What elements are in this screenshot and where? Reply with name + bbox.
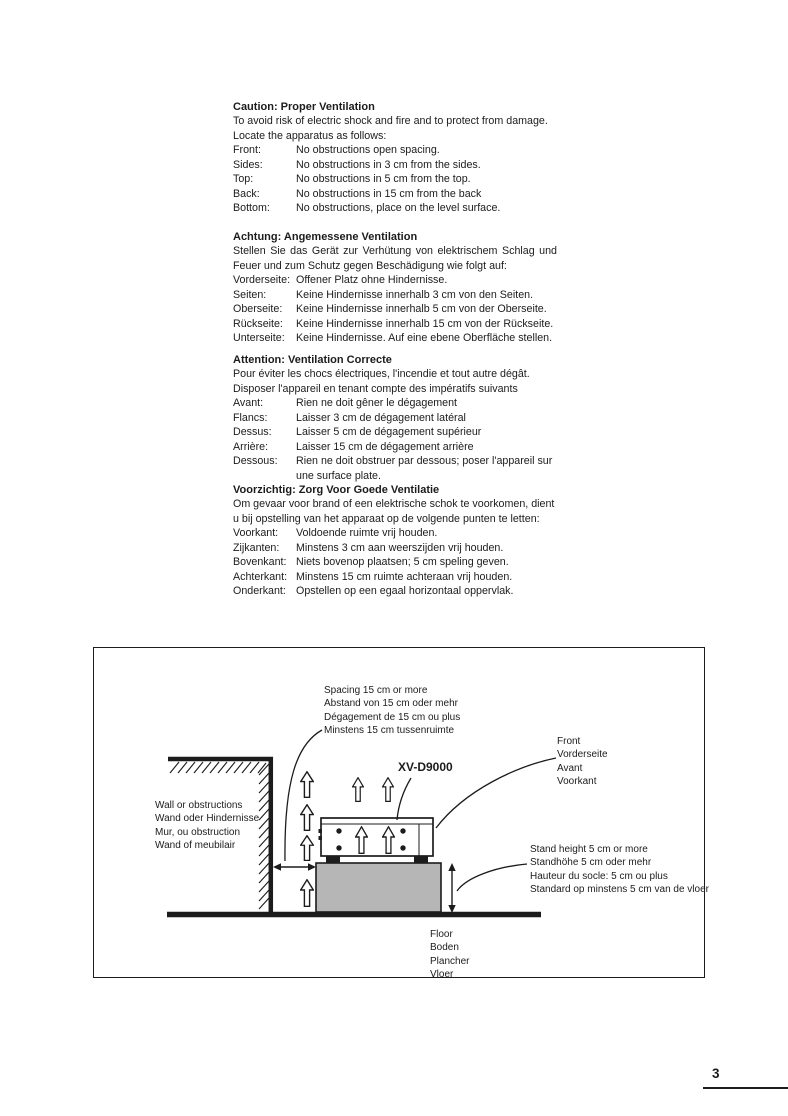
front-label: Front Vorderseite Avant Voorkant xyxy=(557,735,608,789)
spec-label: Back: xyxy=(233,187,296,201)
model-leader-line xyxy=(397,778,411,820)
section-caution-english: Caution: Proper Ventilation To avoid ris… xyxy=(233,100,557,216)
spec-value: Keine Hindernisse innerhalb 3 cm von den… xyxy=(296,288,557,302)
intro-line: u bij opstelling van het apparaat op de … xyxy=(233,512,557,526)
page-number-rule xyxy=(703,1087,788,1089)
spacing-double-arrow-icon xyxy=(273,863,316,871)
intro-line: Disposer l'appareil en tenant compte des… xyxy=(233,382,557,396)
spec-label: Bottom: xyxy=(233,201,296,215)
wall-hatching xyxy=(170,762,266,773)
spec-row: Top:No obstructions in 5 cm from the top… xyxy=(233,172,557,186)
floor-label: Floor Boden Plancher Vloer xyxy=(430,928,469,982)
spec-row: Rückseite:Keine Hindernisse innerhalb 15… xyxy=(233,317,557,331)
unit-foot xyxy=(414,856,428,863)
page-number: 3 xyxy=(712,1066,720,1081)
spec-label-empty xyxy=(233,469,296,483)
spec-label: Top: xyxy=(233,172,296,186)
wall-label: Wall or obstructions Wand oder Hindernis… xyxy=(155,799,259,853)
spec-row: Back:No obstructions in 15 cm from the b… xyxy=(233,187,557,201)
section-heading: Achtung: Angemessene Ventilation xyxy=(233,230,557,244)
spec-value: une surface plate. xyxy=(296,469,557,483)
spec-row: Achterkant:Minstens 15 cm ruimte achtera… xyxy=(233,570,557,584)
spec-label: Flancs: xyxy=(233,411,296,425)
spec-row: Arrière:Laisser 15 cm de dégagement arri… xyxy=(233,440,557,454)
stand-shape xyxy=(316,863,441,912)
section-heading: Voorzichtig: Zorg Voor Goede Ventilatie xyxy=(233,483,557,497)
spec-row: Oberseite:Keine Hindernisse innerhalb 5 … xyxy=(233,302,557,316)
spec-row: Flancs:Laisser 3 cm de dégagement latéra… xyxy=(233,411,557,425)
spec-label: Oberseite: xyxy=(233,302,296,316)
spec-row: Unterseite:Keine Hindernisse. Auf eine e… xyxy=(233,331,557,345)
ventilation-diagram: Spacing 15 cm or more Abstand von 15 cm … xyxy=(93,647,705,978)
intro-line: Feuer und zum Schutz gegen Beschädigung … xyxy=(233,259,557,273)
intro-line: To avoid risk of electric shock and fire… xyxy=(233,114,557,128)
front-leader-line xyxy=(436,758,556,828)
spec-row: Avant:Rien ne doit gêner le dégagement xyxy=(233,396,557,410)
spec-label: Dessus: xyxy=(233,425,296,439)
spec-label: Arrière: xyxy=(233,440,296,454)
unit-foot xyxy=(326,856,340,863)
spec-value: Laisser 3 cm de dégagement latéral xyxy=(296,411,557,425)
spec-row: Bottom:No obstructions, place on the lev… xyxy=(233,201,557,215)
spec-row: Sides:No obstructions in 3 cm from the s… xyxy=(233,158,557,172)
spec-label: Vorderseite: xyxy=(233,273,296,287)
spec-label: Achterkant: xyxy=(233,570,296,584)
spec-label: Zijkanten: xyxy=(233,541,296,555)
vent-slot xyxy=(319,829,322,833)
spec-label: Rückseite: xyxy=(233,317,296,331)
spec-value: Laisser 5 cm de dégagement supérieur xyxy=(296,425,557,439)
model-label: XV-D9000 xyxy=(398,760,453,774)
spec-label: Sides: xyxy=(233,158,296,172)
spec-row: Dessus:Laisser 5 cm de dégagement supéri… xyxy=(233,425,557,439)
spec-label: Bovenkant: xyxy=(233,555,296,569)
section-heading: Caution: Proper Ventilation xyxy=(233,100,557,114)
intro-line: Stellen Sie das Gerät zur Verhütung von … xyxy=(233,244,557,258)
stand-height-label: Stand height 5 cm or more Standhöhe 5 cm… xyxy=(530,843,709,897)
spec-value: Rien ne doit gêner le dégagement xyxy=(296,396,557,410)
unit-shape xyxy=(319,818,434,863)
spec-value: Keine Hindernisse innerhalb 15 cm von de… xyxy=(296,317,557,331)
stand-height-leader-line xyxy=(457,864,527,891)
spec-value: Niets bovenop plaatsen; 5 cm speling gev… xyxy=(296,555,557,569)
spec-row: Seiten:Keine Hindernisse innerhalb 3 cm … xyxy=(233,288,557,302)
spec-value: Offener Platz ohne Hindernisse. xyxy=(296,273,557,287)
intro-line: Pour éviter les chocs électriques, l'inc… xyxy=(233,367,557,381)
spec-label: Voorkant: xyxy=(233,526,296,540)
screw-dot xyxy=(336,828,341,833)
spec-label: Front: xyxy=(233,143,296,157)
spec-row: Onderkant:Opstellen op een egaal horizon… xyxy=(233,584,557,598)
spec-value: Keine Hindernisse innerhalb 5 cm von der… xyxy=(296,302,557,316)
spec-label: Dessous: xyxy=(233,454,296,468)
spec-row: Voorkant:Voldoende ruimte vrij houden. xyxy=(233,526,557,540)
intro-line: Om gevaar voor brand of een elektrische … xyxy=(233,497,557,511)
vent-slot xyxy=(319,836,322,840)
wall-hatching xyxy=(259,764,269,909)
spec-value: No obstructions in 15 cm from the back xyxy=(296,187,557,201)
spec-label: Unterseite: xyxy=(233,331,296,345)
section-heading: Attention: Ventilation Correcte xyxy=(233,353,557,367)
spec-value: No obstructions in 5 cm from the top. xyxy=(296,172,557,186)
spec-value: Minstens 15 cm ruimte achteraan vrij hou… xyxy=(296,570,557,584)
spec-value: Voldoende ruimte vrij houden. xyxy=(296,526,557,540)
spec-row-continuation: une surface plate. xyxy=(233,469,557,483)
section-voorzichtig-dutch: Voorzichtig: Zorg Voor Goede Ventilatie … xyxy=(233,483,557,599)
spec-value: No obstructions open spacing. xyxy=(296,143,557,157)
spacing-label: Spacing 15 cm or more Abstand von 15 cm … xyxy=(324,684,460,738)
spec-row: Dessous:Rien ne doit obstruer par dessou… xyxy=(233,454,557,468)
intro-line: Locate the apparatus as follows: xyxy=(233,129,557,143)
spec-row: Bovenkant:Niets bovenop plaatsen; 5 cm s… xyxy=(233,555,557,569)
section-attention-french: Attention: Ventilation Correcte Pour évi… xyxy=(233,353,557,483)
spec-value: Rien ne doit obstruer par dessous; poser… xyxy=(296,454,557,468)
stand-height-double-arrow-icon xyxy=(448,863,455,913)
spec-value: Laisser 15 cm de dégagement arrière xyxy=(296,440,557,454)
spec-row: Vorderseite:Offener Platz ohne Hindernis… xyxy=(233,273,557,287)
section-achtung-german: Achtung: Angemessene Ventilation Stellen… xyxy=(233,230,557,346)
screw-dot xyxy=(336,845,341,850)
spec-row: Zijkanten:Minstens 3 cm aan weerszijden … xyxy=(233,541,557,555)
spec-value: No obstructions in 3 cm from the sides. xyxy=(296,158,557,172)
spec-value: Minstens 3 cm aan weerszijden vrij houde… xyxy=(296,541,557,555)
spec-value: No obstructions, place on the level surf… xyxy=(296,201,557,215)
spec-label: Onderkant: xyxy=(233,584,296,598)
spec-row: Front:No obstructions open spacing. xyxy=(233,143,557,157)
spec-label: Avant: xyxy=(233,396,296,410)
spec-label: Seiten: xyxy=(233,288,296,302)
screw-dot xyxy=(400,845,405,850)
screw-dot xyxy=(400,828,405,833)
spec-value: Opstellen op een egaal horizontaal opper… xyxy=(296,584,557,598)
spec-value: Keine Hindernisse. Auf eine ebene Oberfl… xyxy=(296,331,557,345)
